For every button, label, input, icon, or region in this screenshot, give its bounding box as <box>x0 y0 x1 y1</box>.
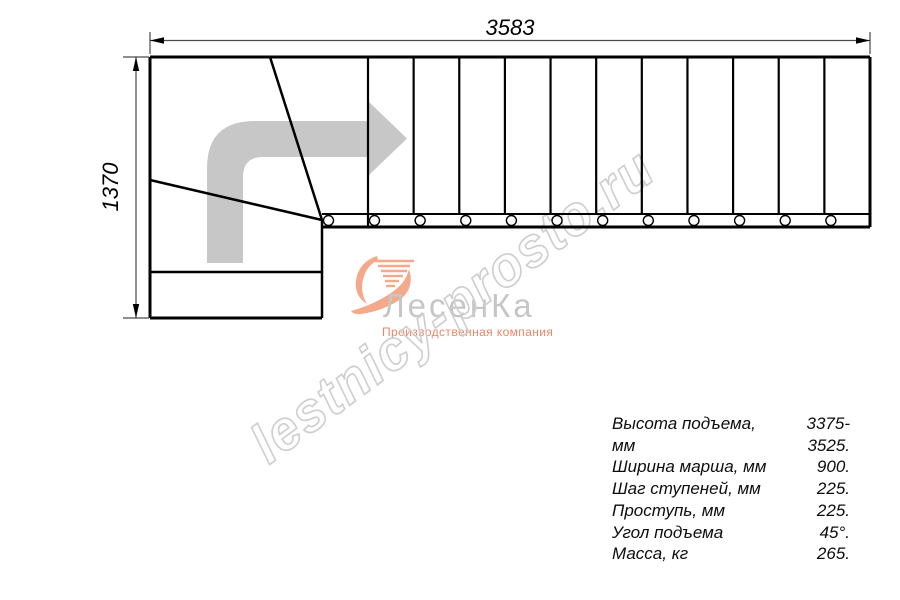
spec-value: 225. <box>817 500 850 522</box>
spec-value: 45°. <box>820 522 850 544</box>
dimension-width-label: 3583 <box>486 15 536 40</box>
spec-label: Масса, кг <box>612 543 688 565</box>
step-lines <box>368 57 824 227</box>
spec-value: 265. <box>817 543 850 565</box>
baluster-circle <box>643 216 653 226</box>
spec-row: Проступь, мм225. <box>612 500 850 522</box>
spec-row: Высота подъема, мм3375-3525. <box>612 413 850 456</box>
baluster-circle <box>415 216 425 226</box>
baluster-circle <box>826 216 836 226</box>
baluster-circle <box>735 216 745 226</box>
spec-value: 900. <box>817 456 850 478</box>
spec-label: Шаг ступеней, мм <box>612 478 761 500</box>
spec-table: Высота подъема, мм3375-3525.Ширина марша… <box>612 413 850 565</box>
watermark-text: lestnicy-prosto.ru <box>239 136 666 475</box>
spec-row: Ширина марша, мм900. <box>612 456 850 478</box>
spec-value: 225. <box>817 478 850 500</box>
dimension-depth-label: 1370 <box>98 162 123 212</box>
direction-arrow-icon <box>207 101 407 263</box>
spec-row: Масса, кг265. <box>612 543 850 565</box>
dimension-depth: 1370 <box>98 57 149 318</box>
spec-row: Шаг ступеней, мм225. <box>612 478 850 500</box>
baluster-circle <box>461 216 471 226</box>
spec-label: Проступь, мм <box>612 500 725 522</box>
spec-row: Угол подъема45°. <box>612 522 850 544</box>
baluster-circle <box>324 216 334 226</box>
spec-label: Ширина марша, мм <box>612 456 766 478</box>
spec-label: Угол подъема <box>612 522 723 544</box>
spec-label: Высота подъема, мм <box>612 413 771 456</box>
page: ЛесенКа Производственная компания lestni… <box>0 0 900 600</box>
dimension-width: 3583 <box>150 15 870 54</box>
baluster-circle <box>689 216 699 226</box>
spec-value: 3375-3525. <box>771 413 850 456</box>
baluster-circle <box>780 216 790 226</box>
baluster-circle <box>370 216 380 226</box>
baluster-circle <box>552 216 562 226</box>
baluster-circle <box>598 216 608 226</box>
baluster-circle <box>506 216 516 226</box>
